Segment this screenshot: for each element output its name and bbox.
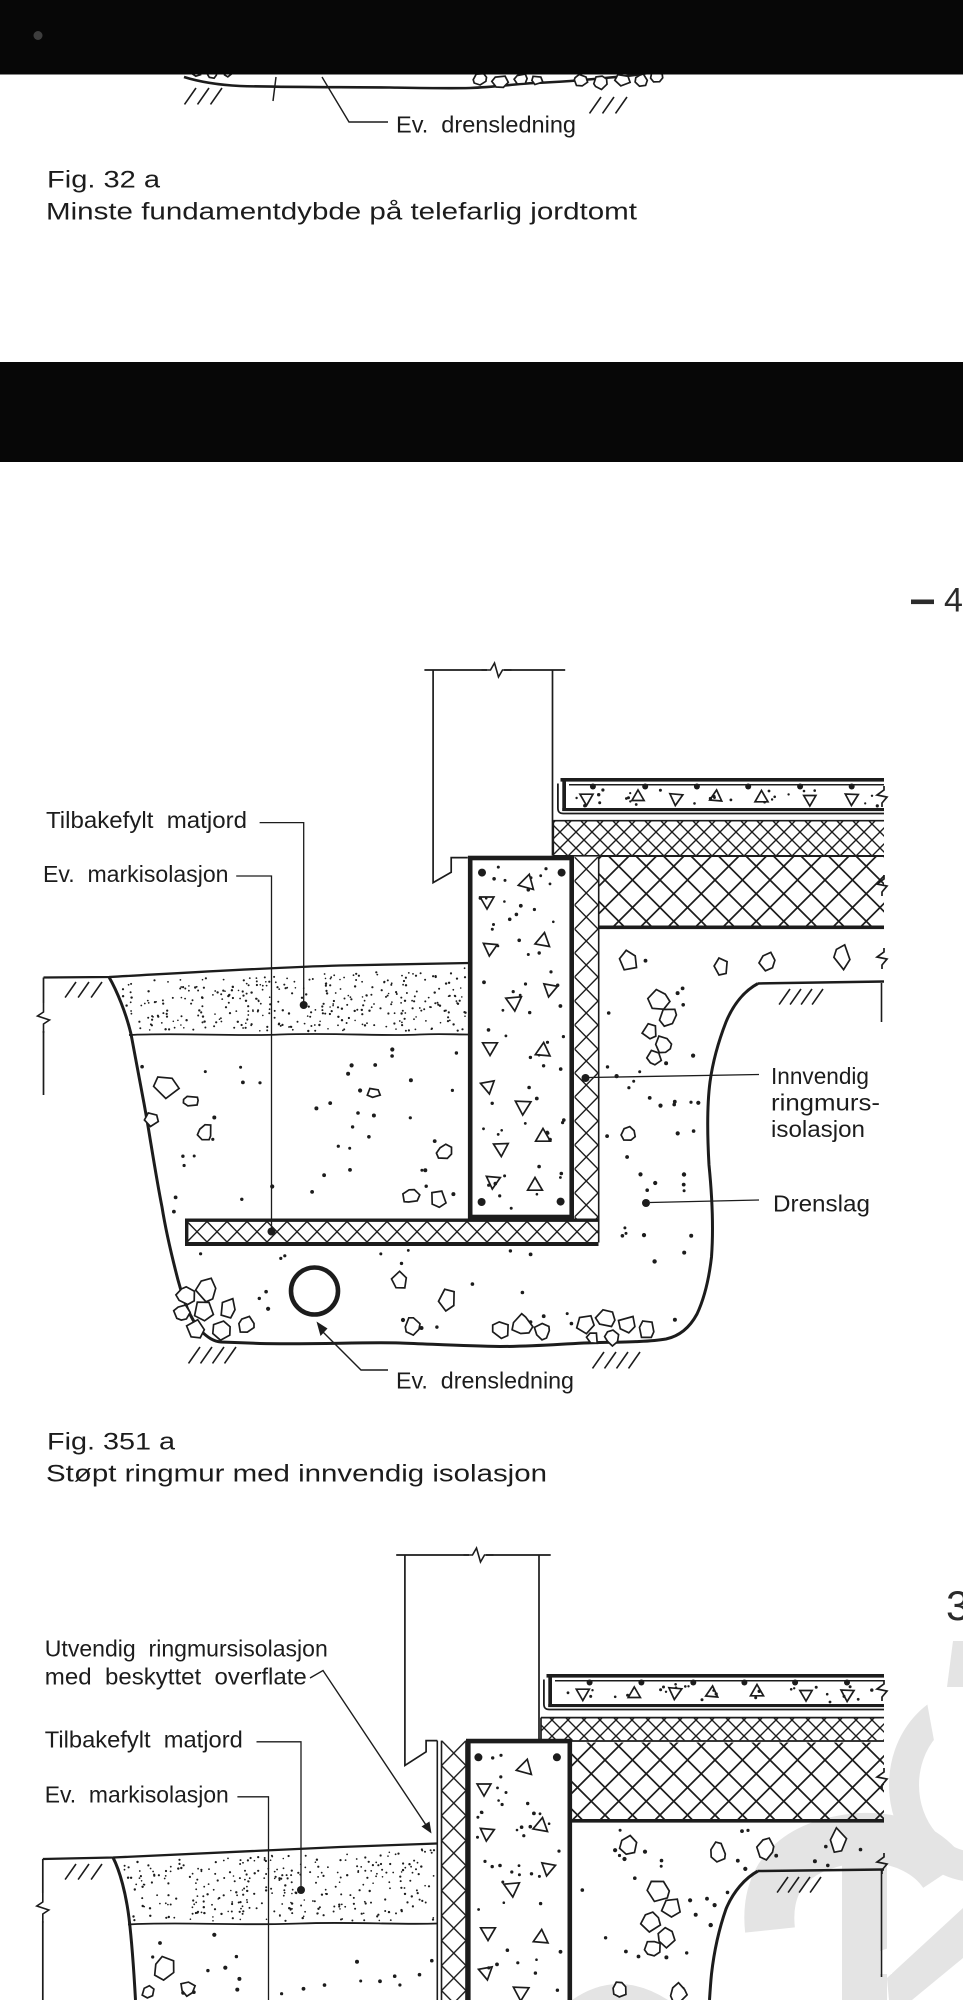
svg-text:3: 3 [946, 1582, 963, 1629]
svg-text:Fig. 32 a: Fig. 32 a [47, 167, 160, 194]
svg-text:Tilbakefylt matjord: Tilbakefylt matjord [45, 1727, 243, 1753]
svg-text:med beskyttet overflate: med beskyttet overflate [45, 1664, 307, 1690]
svg-text:Minste fundamentdybde på telef: Minste fundamentdybde på telefarlig jord… [46, 199, 637, 226]
svg-text:Støpt ringmur med innvendig is: Støpt ringmur med innvendig isolasjon [46, 1461, 547, 1488]
svg-text:Ev. drensledning: Ev. drensledning [396, 1368, 574, 1394]
svg-text:4: 4 [944, 582, 963, 620]
svg-text:Utvendig ringmursisolasjon: Utvendig ringmursisolasjon [45, 1636, 328, 1662]
svg-text:Tilbakefylt matjord: Tilbakefylt matjord [46, 807, 247, 833]
svg-text:Fig. 351 a: Fig. 351 a [47, 1429, 175, 1456]
svg-text:isolasjon: isolasjon [771, 1116, 865, 1142]
svg-text:Ev. markisolasjon: Ev. markisolasjon [43, 861, 229, 887]
svg-text:Innvendig: Innvendig [771, 1063, 869, 1089]
svg-text:Ev. markisolasjon: Ev. markisolasjon [45, 1782, 229, 1808]
svg-text:ringmurs-: ringmurs- [771, 1090, 880, 1116]
svg-text:Ev. drensledning: Ev. drensledning [396, 112, 576, 138]
svg-text:Drenslag: Drenslag [773, 1191, 870, 1217]
